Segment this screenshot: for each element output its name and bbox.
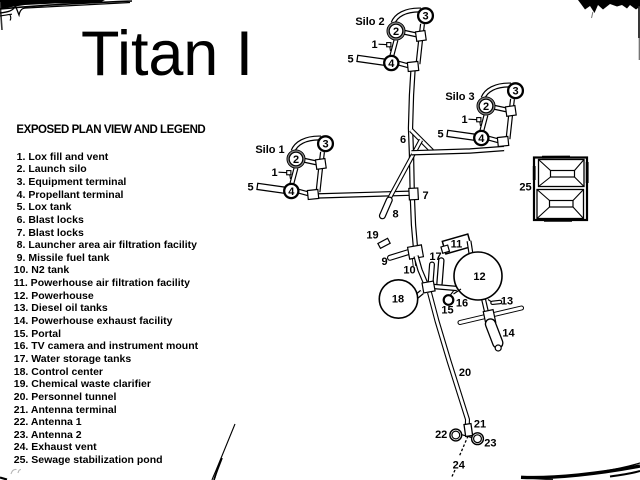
svg-text:10: 10 bbox=[403, 265, 415, 277]
svg-text:19: 19 bbox=[366, 230, 378, 242]
svg-text:Silo 3: Silo 3 bbox=[445, 91, 474, 103]
svg-text:6: 6 bbox=[400, 134, 406, 146]
svg-text:1: 1 bbox=[371, 39, 377, 51]
svg-text:13: 13 bbox=[501, 296, 513, 308]
svg-text:20: 20 bbox=[459, 367, 471, 379]
svg-text:1: 1 bbox=[461, 114, 467, 126]
svg-text:22: 22 bbox=[435, 429, 447, 441]
svg-text:14: 14 bbox=[502, 328, 515, 340]
svg-text:5: 5 bbox=[347, 53, 353, 65]
svg-text:25: 25 bbox=[519, 182, 531, 194]
svg-text:8: 8 bbox=[392, 209, 398, 221]
svg-text:18: 18 bbox=[392, 294, 404, 306]
svg-text:3: 3 bbox=[322, 139, 328, 151]
svg-text:Silo 2: Silo 2 bbox=[355, 16, 384, 28]
svg-text:2: 2 bbox=[483, 101, 489, 113]
svg-text:5: 5 bbox=[247, 181, 253, 193]
svg-text:4: 4 bbox=[388, 58, 395, 70]
svg-text:4: 4 bbox=[478, 133, 485, 145]
svg-text:15: 15 bbox=[441, 305, 453, 317]
svg-text:2: 2 bbox=[293, 154, 299, 166]
svg-text:Silo 1: Silo 1 bbox=[255, 144, 284, 156]
svg-text:12: 12 bbox=[473, 271, 485, 283]
svg-text:1: 1 bbox=[271, 167, 277, 179]
svg-text:7: 7 bbox=[422, 190, 428, 202]
svg-text:5: 5 bbox=[437, 128, 443, 140]
svg-text:17: 17 bbox=[429, 251, 441, 263]
svg-text:21: 21 bbox=[474, 419, 486, 431]
svg-text:16: 16 bbox=[456, 298, 468, 310]
svg-text:11: 11 bbox=[451, 239, 463, 251]
svg-text:3: 3 bbox=[512, 86, 518, 98]
svg-text:3: 3 bbox=[422, 11, 428, 23]
svg-text:9: 9 bbox=[381, 256, 387, 268]
svg-text:2: 2 bbox=[393, 26, 399, 38]
svg-text:24: 24 bbox=[453, 459, 466, 471]
svg-text:23: 23 bbox=[484, 437, 496, 449]
svg-text:4: 4 bbox=[288, 186, 295, 198]
